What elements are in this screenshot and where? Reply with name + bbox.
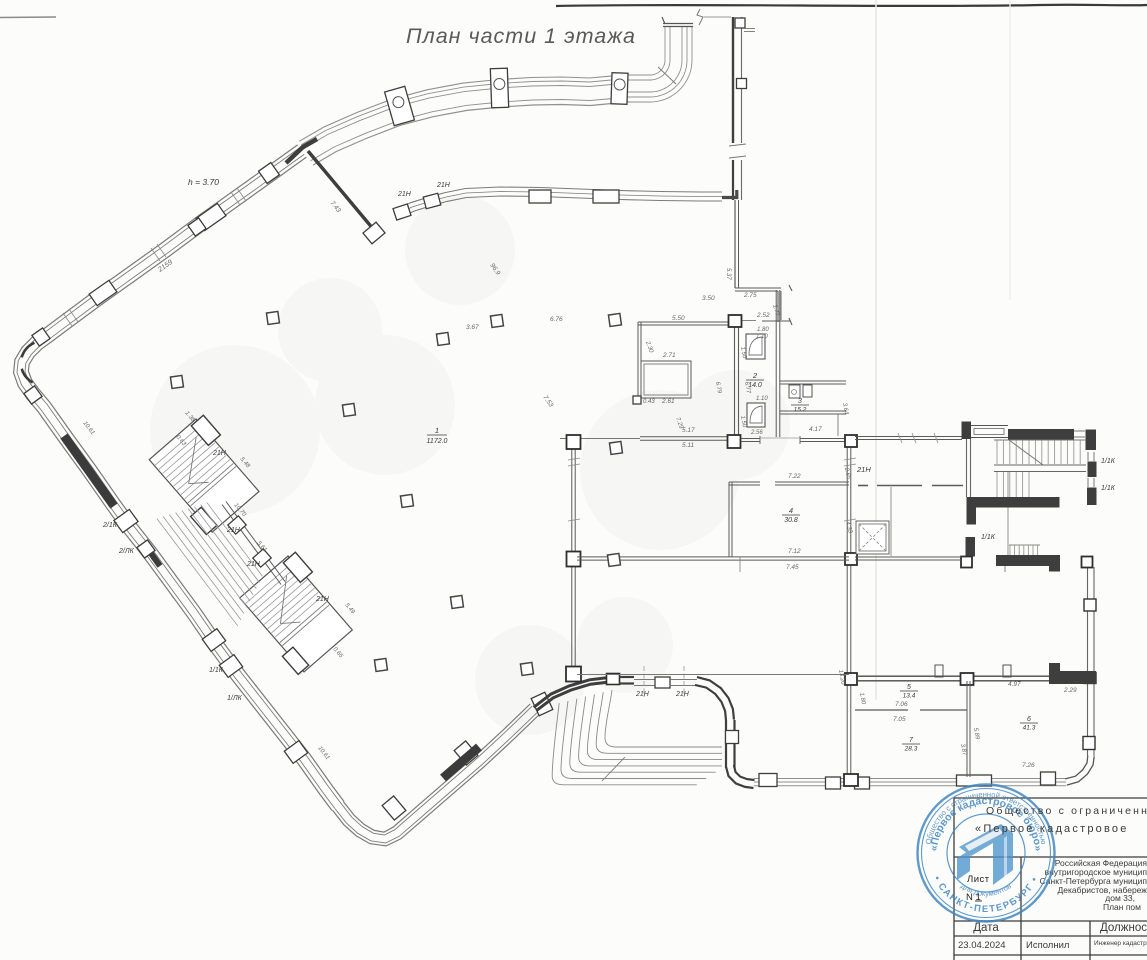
svg-text:2: 2 (752, 371, 758, 380)
svg-text:21Н: 21Н (226, 527, 241, 534)
svg-text:«Первое кадастровое: «Первое кадастровое (975, 823, 1129, 835)
svg-text:1/1К: 1/1К (209, 667, 224, 674)
svg-text:7.26: 7.26 (1022, 762, 1035, 769)
svg-text:План части 1 этажа: План части 1 этажа (406, 24, 636, 48)
svg-text:5.11: 5.11 (682, 442, 695, 449)
svg-text:2/ЛК: 2/ЛК (118, 548, 135, 555)
svg-text:5: 5 (907, 684, 911, 691)
svg-text:28.3: 28.3 (904, 746, 918, 753)
svg-text:7.06: 7.06 (895, 701, 908, 708)
svg-text:3: 3 (798, 398, 802, 405)
svg-text:1/1К: 1/1К (981, 534, 996, 541)
svg-text:4.97: 4.97 (1008, 681, 1021, 688)
svg-text:3.50: 3.50 (702, 295, 715, 302)
svg-text:Исполнил: Исполнил (1026, 940, 1069, 951)
svg-text:h = 3.70: h = 3.70 (188, 177, 219, 187)
svg-text:Должнос: Должнос (1100, 922, 1147, 934)
svg-text:21Н: 21Н (856, 465, 871, 474)
svg-text:4.17: 4.17 (809, 426, 822, 433)
svg-text:21Н: 21Н (397, 191, 412, 198)
svg-text:13.4: 13.4 (903, 693, 916, 700)
svg-text:5.50: 5.50 (672, 315, 685, 322)
svg-text:7.12: 7.12 (788, 548, 801, 555)
svg-text:5.37: 5.37 (725, 268, 731, 280)
svg-text:2.52: 2.52 (756, 312, 770, 319)
svg-text:21Н: 21Н (212, 450, 227, 457)
svg-text:2.75: 2.75 (743, 292, 757, 299)
svg-text:2/1К: 2/1К (102, 522, 118, 529)
svg-text:7.45: 7.45 (786, 564, 799, 571)
svg-text:21Н: 21Н (246, 561, 261, 568)
svg-text:21Н: 21Н (635, 691, 650, 698)
svg-text:1/ЛК: 1/ЛК (227, 695, 243, 702)
svg-text:7.22: 7.22 (788, 473, 801, 480)
svg-text:1: 1 (435, 426, 439, 435)
svg-text:Лист: Лист (967, 874, 990, 885)
svg-text:23.04.2024: 23.04.2024 (958, 940, 1006, 951)
svg-text:План пом: План пом (1103, 902, 1141, 912)
svg-text:2.56: 2.56 (750, 430, 763, 436)
svg-text:1.80: 1.80 (757, 327, 769, 333)
svg-text:Инженер кадастр: Инженер кадастр (1094, 940, 1147, 947)
svg-text:6.76: 6.76 (550, 316, 563, 323)
svg-text:2.71: 2.71 (662, 352, 676, 359)
svg-text:2.61: 2.61 (661, 398, 675, 405)
svg-text:21Н: 21Н (675, 691, 690, 698)
svg-text:0.43: 0.43 (643, 399, 655, 405)
svg-text:5.17: 5.17 (682, 427, 695, 434)
svg-text:1/1К: 1/1К (1101, 458, 1116, 465)
svg-text:Дата: Дата (973, 922, 999, 934)
svg-text:7.05: 7.05 (893, 716, 906, 723)
svg-text:41.3: 41.3 (1023, 725, 1036, 732)
svg-text:1.10: 1.10 (756, 396, 768, 402)
svg-text:30.8: 30.8 (784, 517, 798, 524)
svg-text:21Н: 21Н (436, 182, 451, 189)
svg-text:2.29: 2.29 (1063, 687, 1077, 694)
svg-text:15.2: 15.2 (794, 407, 807, 414)
svg-text:1/1К: 1/1К (1101, 485, 1116, 492)
svg-text:3.67: 3.67 (466, 324, 479, 331)
svg-text:4: 4 (789, 506, 793, 515)
svg-text:1172.0: 1172.0 (427, 438, 448, 445)
svg-text:21Н: 21Н (315, 596, 330, 603)
svg-text:Общество с ограниченной: Общество с ограниченной (986, 805, 1147, 817)
svg-text:14.0: 14.0 (748, 382, 762, 389)
svg-text:6: 6 (1027, 716, 1031, 723)
svg-text:1.10: 1.10 (756, 334, 768, 340)
